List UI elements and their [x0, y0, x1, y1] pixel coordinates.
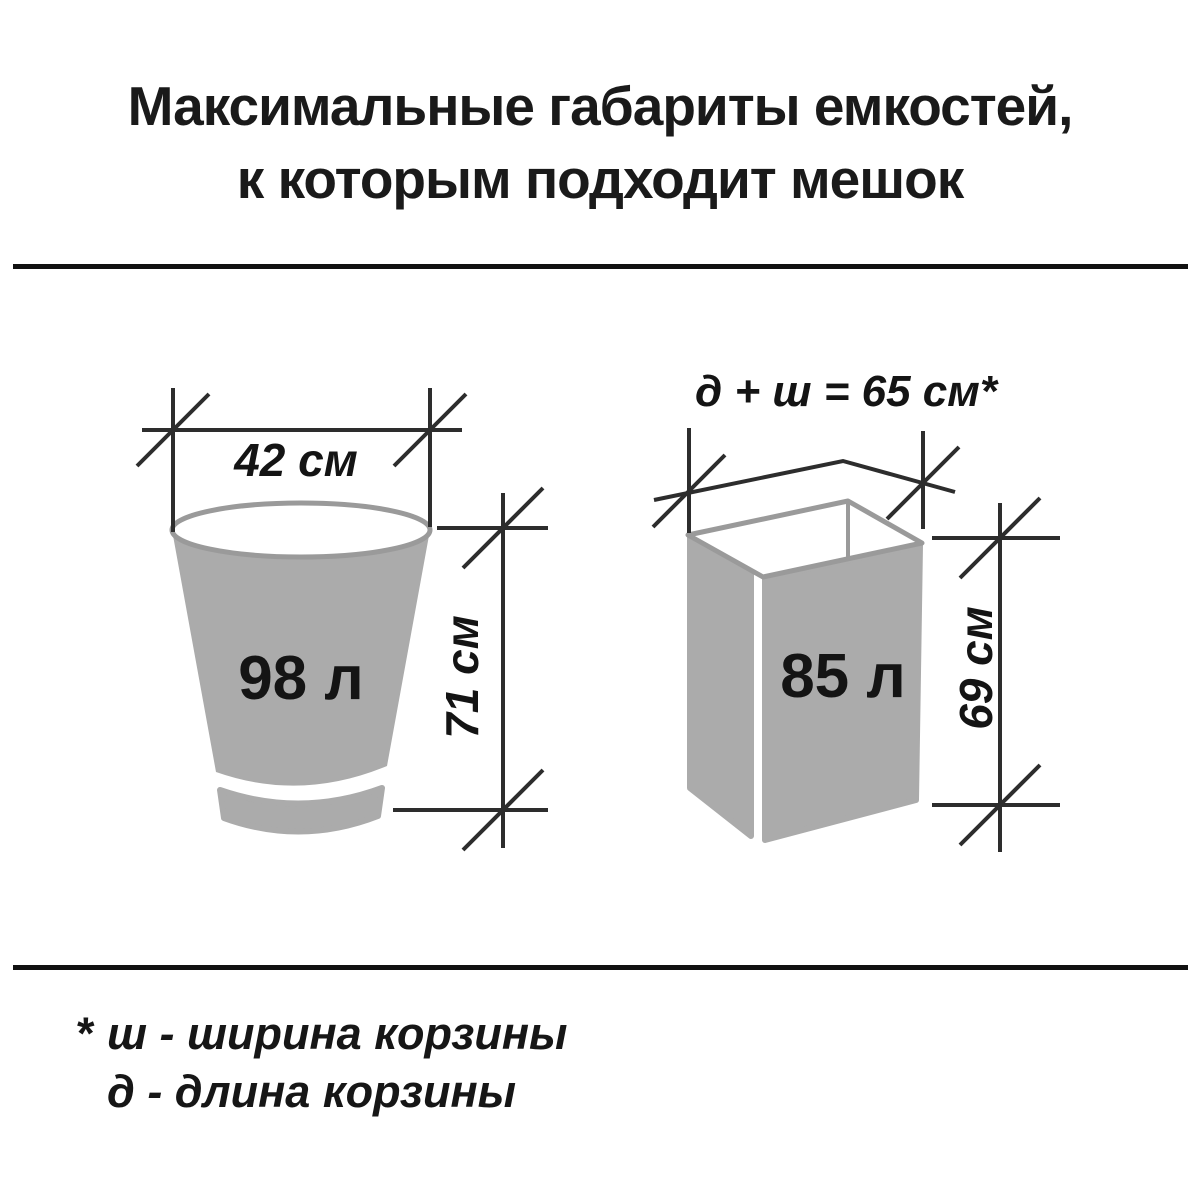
footnote-asterisk: * — [77, 1005, 107, 1063]
footnote-line-1: ш - ширина корзины — [107, 1008, 567, 1059]
footnote: *ш - ширина корзины д - длина корзины — [77, 1005, 567, 1121]
rect-bin-volume-label: 85 л — [780, 642, 906, 711]
rect-bin-height-label: 69 см — [950, 606, 1002, 730]
round-bin-rim — [172, 503, 430, 557]
round-bin-volume-label: 98 л — [238, 644, 364, 713]
rect-bin-left-face — [690, 537, 751, 836]
rect-bin-formula-label: д + ш = 65 см* — [695, 367, 999, 416]
round-bin-width-label: 42 см — [233, 434, 358, 486]
round-bin-diagram: 42 см 98 л 71 см — [137, 388, 548, 850]
round-bin-base — [220, 788, 382, 832]
round-bin-height-label: 71 см — [436, 615, 488, 739]
footnote-line-2: д - длина корзины — [77, 1063, 567, 1121]
rect-bin-diagram: д + ш = 65 см* 85 л 69 см — [653, 367, 1060, 852]
footnote-line-1-row: *ш - ширина корзины — [77, 1005, 567, 1063]
infographic: Максимальные габариты емкостей, к которы… — [0, 0, 1200, 1200]
